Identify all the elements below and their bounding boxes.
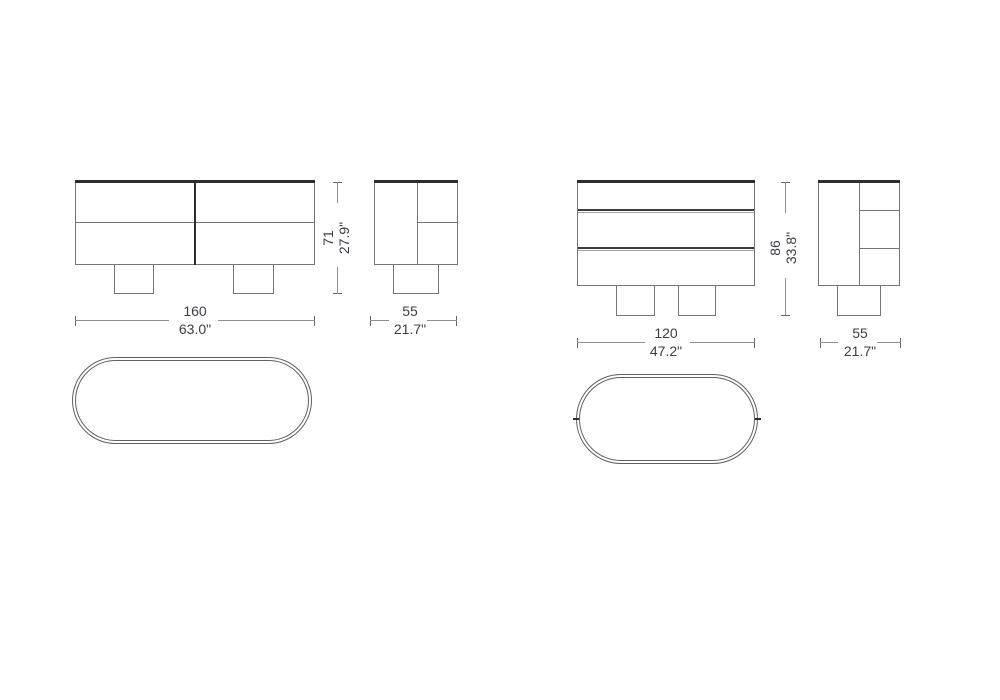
right-front-top-panel-line xyxy=(577,180,755,183)
height-label-cm: 86 xyxy=(767,208,783,288)
dimension-tick xyxy=(577,338,578,348)
depth-label-cm: 55 xyxy=(820,326,900,342)
width-label-cm: 120 xyxy=(626,326,706,342)
height-label-inches: 33.8" xyxy=(783,208,799,288)
right-top-view-junction-tick-left xyxy=(573,418,579,420)
right-top-view-inner-outline xyxy=(579,377,755,461)
right-front-foot-right xyxy=(678,286,716,316)
left-front-center-divider xyxy=(194,183,196,265)
left-side-top-panel-line xyxy=(374,180,458,183)
right-side-foot xyxy=(837,286,881,316)
height-label-inches: 27.9" xyxy=(336,198,352,278)
height-label-cm: 71 xyxy=(320,198,336,278)
dimension-tick xyxy=(456,316,457,326)
width-label-cm: 160 xyxy=(155,304,235,320)
right-front-drawer-line-2-shadow xyxy=(578,250,754,251)
dimension-line-segment xyxy=(877,342,901,343)
right-front-body-outline xyxy=(577,181,755,286)
depth-label-inches: 21.7" xyxy=(820,344,900,360)
dimension-line-segment xyxy=(427,320,457,321)
dimension-line-segment xyxy=(370,320,389,321)
height-label: 71 27.9" xyxy=(320,198,352,278)
right-top-view-junction-tick-right xyxy=(755,418,761,420)
left-side-shelf-line xyxy=(418,222,457,223)
dimension-line-segment xyxy=(75,320,169,321)
right-front-foot-left xyxy=(616,286,655,316)
height-label: 86 33.8" xyxy=(767,208,799,288)
dimension-line-segment xyxy=(690,342,755,343)
furniture-dimension-drawing: 160 63.0" 71 27.9" 55 21.7" xyxy=(0,0,1000,700)
width-label-inches: 63.0" xyxy=(155,322,235,338)
dimension-tick xyxy=(900,338,901,348)
dimension-tick xyxy=(754,338,755,348)
right-front-drawer-line-2 xyxy=(578,247,754,249)
right-side-divider xyxy=(859,183,860,285)
left-front-foot-right xyxy=(233,265,274,294)
left-side-divider xyxy=(417,183,418,264)
dimension-tick xyxy=(314,316,315,326)
right-side-shelf-line-2 xyxy=(860,248,899,249)
dimension-line-segment xyxy=(577,342,645,343)
depth-label-cm: 55 xyxy=(370,304,450,320)
dimension-tick xyxy=(781,315,790,316)
width-label-inches: 47.2" xyxy=(626,344,706,360)
right-side-shelf-line-1 xyxy=(860,210,899,211)
depth-label-inches: 21.7" xyxy=(370,322,450,338)
dimension-tick xyxy=(75,316,76,326)
left-front-foot-left xyxy=(114,265,154,294)
left-side-body-outline xyxy=(374,181,458,265)
right-front-drawer-line-1-shadow xyxy=(578,212,754,213)
dimension-line-segment xyxy=(820,342,838,343)
left-top-view-inner-outline xyxy=(75,360,309,441)
right-front-drawer-line-1 xyxy=(578,209,754,211)
dimension-line-segment xyxy=(218,320,315,321)
left-side-foot xyxy=(393,265,439,294)
